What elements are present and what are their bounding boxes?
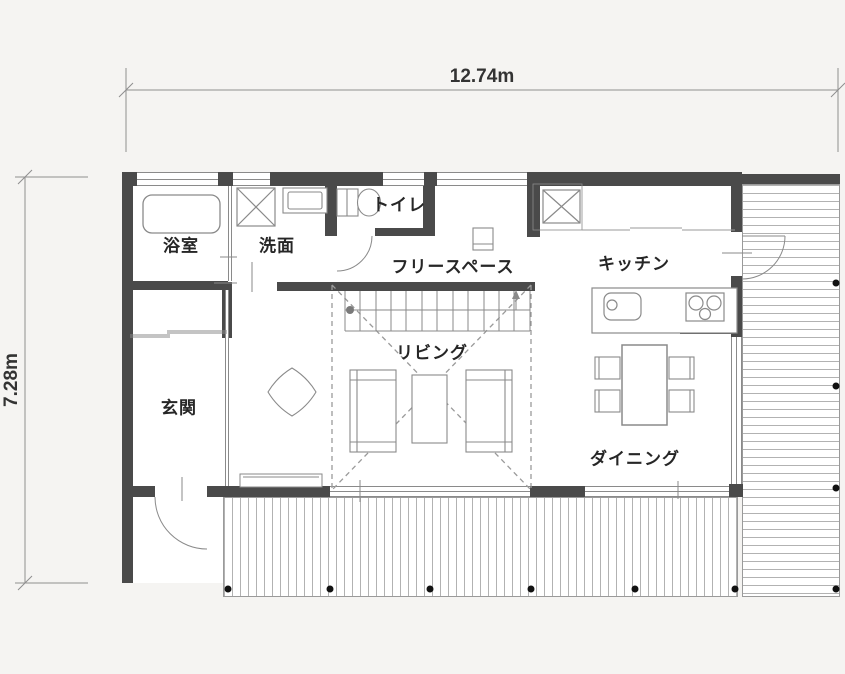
entrance-door <box>155 477 207 549</box>
plan-linework <box>0 0 845 674</box>
coffee-table <box>412 375 447 443</box>
lounge-chair <box>268 368 316 416</box>
room-label-living: リビング <box>396 339 468 364</box>
burner-icon <box>700 309 711 320</box>
room-label-entrance: 玄関 <box>161 394 197 419</box>
room-label-freespace: フリースペース <box>391 253 514 278</box>
burner-icon <box>707 296 721 310</box>
kitchen-counter <box>592 288 737 333</box>
bathtub <box>143 195 220 233</box>
kitchen-back-counter-line <box>582 228 735 230</box>
dimension-height <box>15 170 88 590</box>
room-label-dining: ダイニング <box>590 445 680 470</box>
washbasin <box>283 188 327 213</box>
deck-door <box>722 236 785 279</box>
deck-posts <box>225 280 840 593</box>
dining-table <box>622 345 667 425</box>
washing-machine <box>237 188 275 226</box>
stair-up-arrow <box>512 290 520 299</box>
floor-plan: 浴室 洗面 トイレ フリースペース キッチン 玄関 リビング ダイニング 12.… <box>0 0 845 674</box>
dimension-width-label: 12.74m <box>450 66 514 88</box>
refrigerator <box>533 184 582 230</box>
dimension-height-label: 7.28m <box>1 353 23 407</box>
entrance-closet <box>130 331 227 337</box>
room-label-bathroom: 浴室 <box>163 232 199 257</box>
room-label-washroom: 洗面 <box>259 232 295 257</box>
faucet-icon <box>607 300 617 310</box>
freespace-shelf <box>473 228 493 250</box>
burner-icon <box>689 296 703 310</box>
tv-board <box>240 474 322 487</box>
stair-start-dot <box>346 306 354 314</box>
room-label-kitchen: キッチン <box>598 250 670 275</box>
staircase <box>345 290 530 331</box>
toilet-door <box>337 236 372 271</box>
room-label-toilet: トイレ <box>372 191 426 216</box>
